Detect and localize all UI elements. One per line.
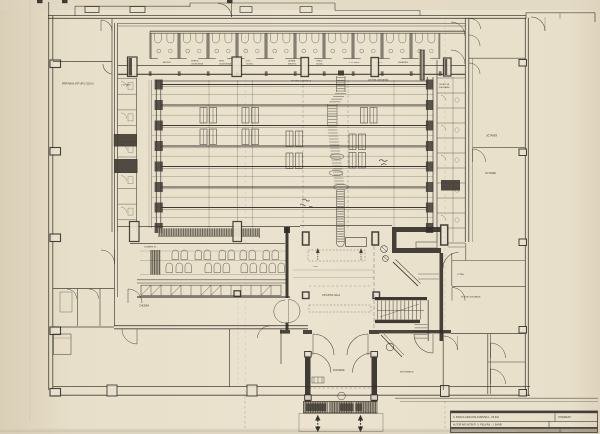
svg-text:ZBORNÁ ZBIERÁRŇA: ZBORNÁ ZBIERÁRŇA: [368, 79, 389, 82]
svg-text:TRIED.: TRIED.: [316, 61, 323, 63]
svg-text:L.VÝŤAHY: L.VÝŤAHY: [121, 83, 132, 86]
svg-text:VÝŤAH: VÝŤAH: [457, 273, 464, 276]
svg-text:ZBORNÁ UČEBŇACA: ZBORNÁ UČEBŇACA: [291, 80, 312, 83]
svg-text:LEHÁREŇ: LEHÁREŇ: [398, 61, 408, 64]
svg-text:+0,00: +0,00: [313, 266, 318, 268]
svg-text:MIESTN.: MIESTN.: [288, 63, 297, 65]
svg-text:PREDN.: PREDN.: [191, 61, 199, 63]
svg-text:VYP.: VYP.: [246, 61, 251, 63]
svg-text:ODDELENIA: ODDELENIA: [219, 62, 232, 65]
svg-text:Š. BANKA ČESKOSLOVENSKÁ - ŽI: Š. BANKA ČESKOSLOVENSKÁ - ŽILINA: [453, 416, 499, 419]
svg-text:ARCHÍV: ARCHÍV: [163, 61, 171, 64]
svg-text:CHODBA: CHODBA: [139, 305, 150, 308]
svg-text:AUTOR ARCHITEKTI: V. PELIKÁN: AUTOR ARCHITEKTI: V. PELIKÁN - J. BANÍK: [453, 424, 502, 427]
svg-text:UKLADCIA: UKLADCIA: [439, 83, 450, 86]
svg-text:PRÍPRAVA VSTUPU CELKU: PRÍPRAVA VSTUPU CELKU: [62, 83, 94, 86]
svg-text:INFORMÁCIE: INFORMÁCIE: [400, 371, 414, 374]
svg-text:UČTÁREŇ: UČTÁREŇ: [486, 135, 497, 138]
svg-text:SPIS.: SPIS.: [219, 61, 225, 63]
svg-text:VYP. MIES.: VYP. MIES.: [349, 62, 360, 64]
svg-text:ODDEL.: ODDEL.: [246, 63, 254, 65]
svg-text:ČITÁREŇ ŠT.: ČITÁREŇ ŠT.: [144, 246, 157, 249]
svg-text:ZÁDVERIE: ZÁDVERIE: [333, 369, 345, 372]
svg-text:ZHIEVANIE: ZHIEVANIE: [439, 86, 450, 89]
svg-text:UČTÁREŇ: UČTÁREŇ: [485, 172, 496, 175]
svg-text:ODDEL.: ODDEL.: [316, 63, 324, 65]
svg-text:VSTUPNÁ HALA: VSTUPNÁ HALA: [322, 294, 341, 297]
svg-text:DENNÁ: DENNÁ: [288, 60, 296, 63]
svg-text:INTERIÉRY: INTERIÉRY: [558, 416, 572, 419]
svg-text:ODDELENIA: ODDELENIA: [191, 62, 204, 65]
